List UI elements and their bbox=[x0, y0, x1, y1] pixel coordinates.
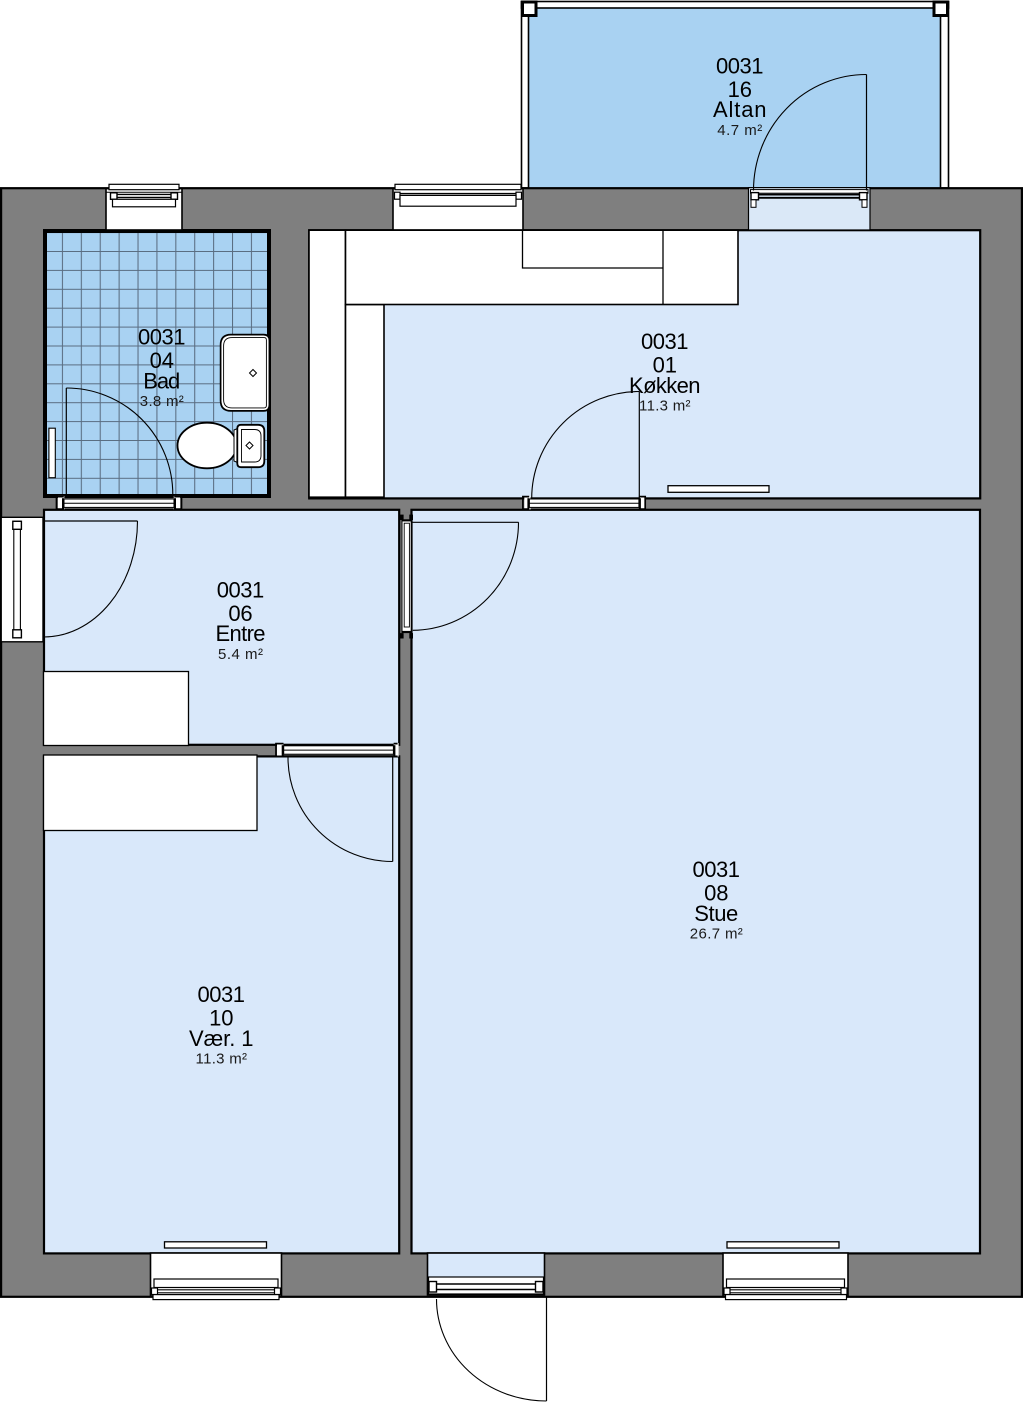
svg-text:0031: 0031 bbox=[716, 53, 764, 78]
svg-text:0031: 0031 bbox=[138, 325, 186, 350]
svg-text:0031: 0031 bbox=[641, 329, 689, 354]
svg-text:Entre: Entre bbox=[216, 621, 266, 646]
svg-text:26.7 m²: 26.7 m² bbox=[690, 926, 743, 943]
svg-text:Bad: Bad bbox=[143, 368, 180, 393]
svg-text:3.8 m²: 3.8 m² bbox=[140, 393, 184, 410]
svg-text:5.4 m²: 5.4 m² bbox=[218, 646, 263, 663]
svg-text:0031: 0031 bbox=[198, 982, 245, 1007]
svg-text:0031: 0031 bbox=[693, 857, 741, 882]
svg-text:Altan: Altan bbox=[713, 97, 767, 122]
svg-text:11.3 m²: 11.3 m² bbox=[196, 1051, 247, 1068]
svg-text:Køkken: Køkken bbox=[629, 373, 701, 398]
svg-text:11.3 m²: 11.3 m² bbox=[639, 398, 691, 415]
svg-text:Vær. 1: Vær. 1 bbox=[189, 1026, 253, 1051]
svg-text:Stue: Stue bbox=[694, 901, 738, 926]
svg-text:4.7 m²: 4.7 m² bbox=[717, 122, 762, 139]
svg-text:0031: 0031 bbox=[217, 577, 265, 602]
